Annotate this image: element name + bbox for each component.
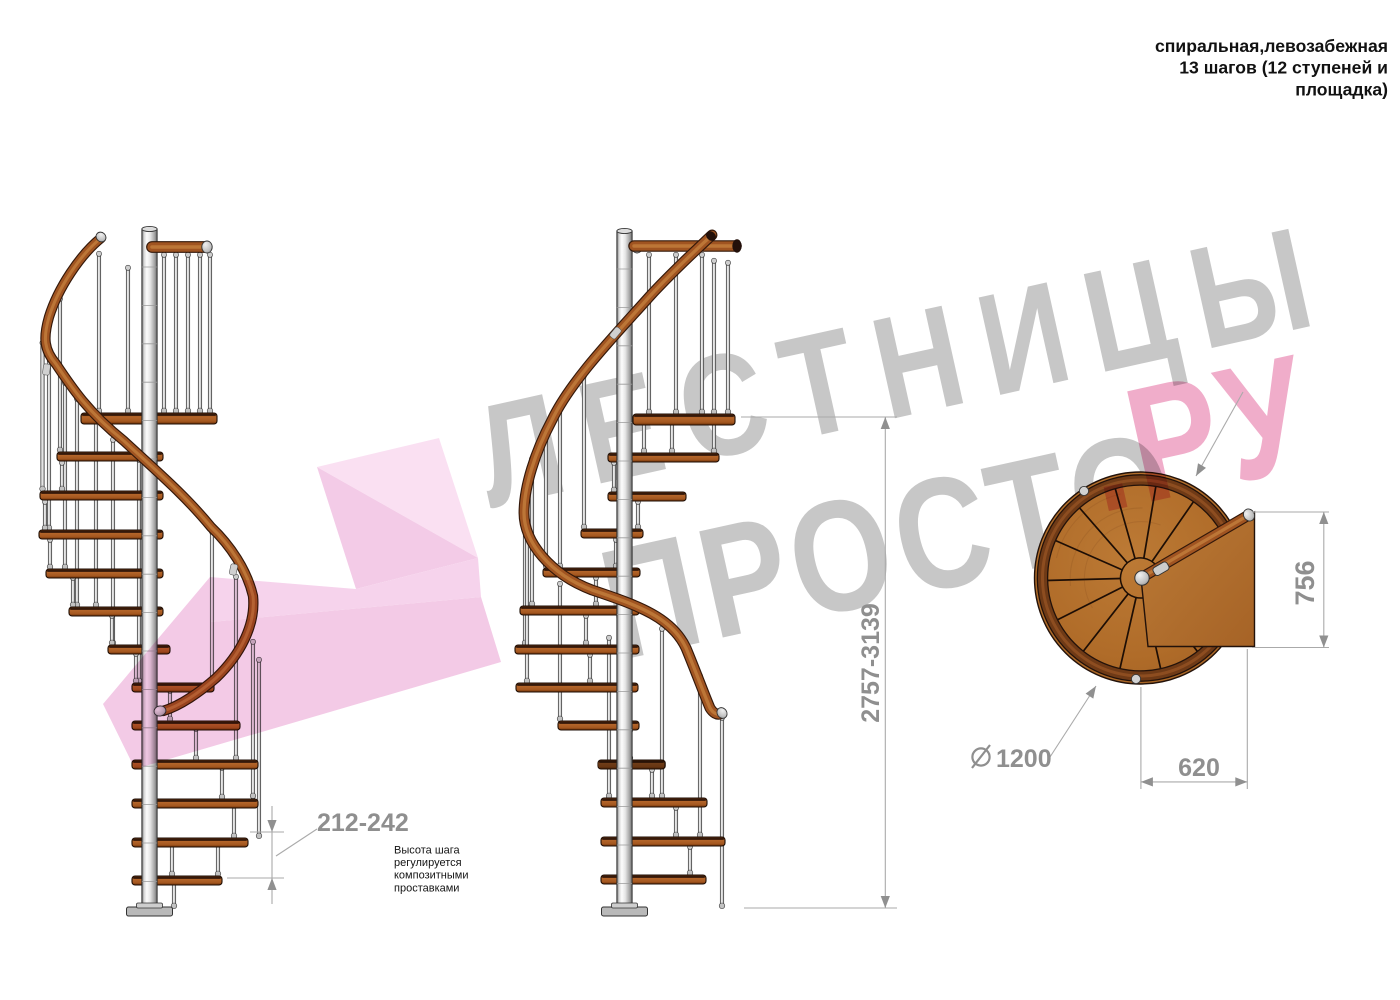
svg-text:620: 620 [1178, 754, 1220, 782]
svg-text:756: 756 [1290, 560, 1320, 605]
svg-text:2757-3139: 2757-3139 [857, 603, 885, 723]
svg-text:1200: 1200 [996, 745, 1052, 773]
svg-text:212-242: 212-242 [317, 809, 409, 837]
svg-text:Высота шагарегулируетсякомпози: Высота шагарегулируетсякомпозитнымипрост… [394, 845, 468, 895]
